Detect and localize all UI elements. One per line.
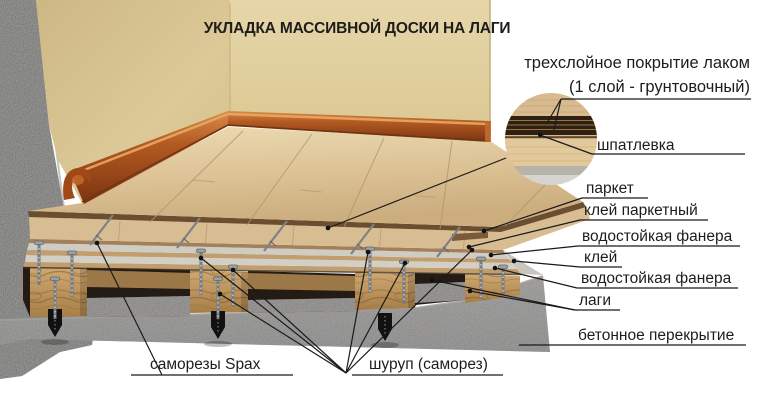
- label-spax-screws: саморезы Spax: [150, 356, 261, 373]
- label-coating-line1: трехслойное покрытие лаком: [524, 54, 750, 72]
- label-parquet-glue: клей паркетный: [584, 202, 698, 219]
- label-plywood-bottom: водостойкая фанера: [581, 270, 732, 287]
- joist: [355, 272, 415, 310]
- label-parquet: паркет: [586, 180, 634, 197]
- label-putty: шпатлевка: [597, 137, 675, 154]
- label-joists: лаги: [579, 292, 611, 309]
- putty-layer: [505, 136, 597, 138]
- diagram-page: УКЛАДКА МАССИВНОЙ ДОСКИ НА ЛАГИ: [0, 0, 758, 401]
- cross-joist-beam: [87, 270, 190, 289]
- label-plywood-top: водостойкая фанера: [582, 228, 733, 245]
- diagram-canvas: УКЛАДКА МАССИВНОЙ ДОСКИ НА ЛАГИ: [0, 0, 758, 401]
- page-title: УКЛАДКА МАССИВНОЙ ДОСКИ НА ЛАГИ: [204, 19, 511, 37]
- label-screw: шуруп (саморез): [369, 356, 488, 373]
- label-concrete-slab: бетонное перекрытие: [578, 327, 734, 344]
- cross-joist-beam: [248, 273, 355, 291]
- label-coating-line2: (1 слой - грунтовочный): [569, 78, 750, 96]
- label-glue: клей: [584, 249, 617, 266]
